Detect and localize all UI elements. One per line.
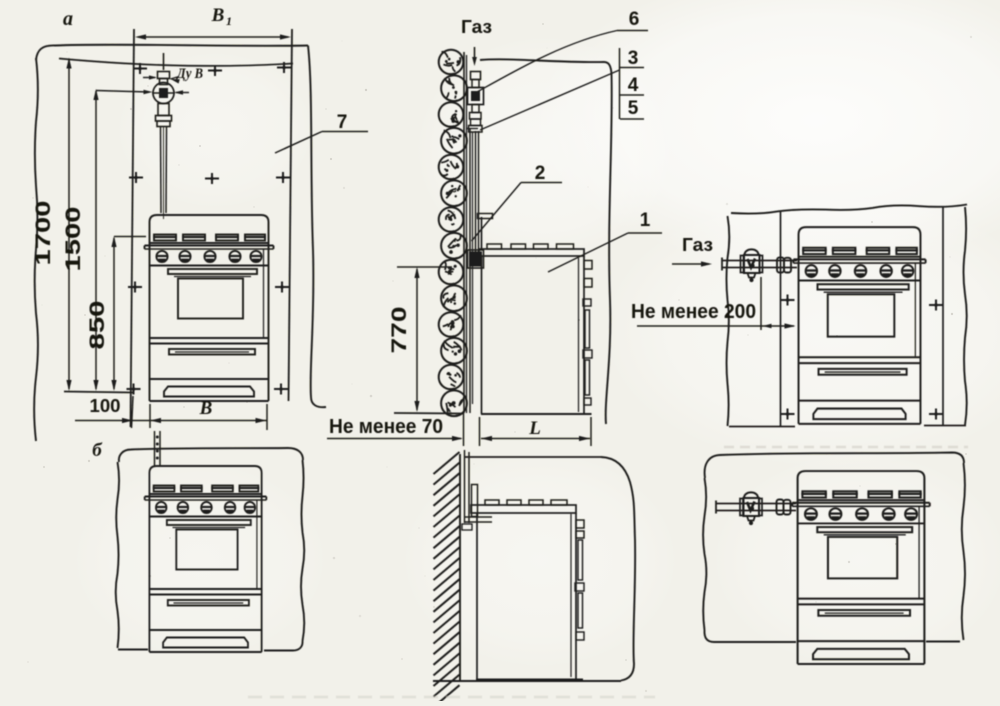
svg-text:1700: 1700 <box>32 201 55 266</box>
svg-text:7: 7 <box>337 112 348 133</box>
svg-text:5: 5 <box>628 98 639 119</box>
svg-text:3: 3 <box>628 48 639 69</box>
svg-text:2: 2 <box>535 163 546 184</box>
svg-text:Не менее 200: Не менее 200 <box>631 301 756 323</box>
svg-text:Газ: Газ <box>682 235 713 255</box>
svg-text:1500: 1500 <box>62 207 85 272</box>
svg-text:В: В <box>211 5 225 26</box>
svg-text:Не менее 70: Не менее 70 <box>329 416 443 438</box>
svg-text:а: а <box>63 8 73 30</box>
svg-text:б: б <box>92 440 103 461</box>
svg-text:4: 4 <box>628 75 639 96</box>
svg-text:100: 100 <box>90 396 121 416</box>
svg-text:850: 850 <box>86 301 109 350</box>
svg-text:1: 1 <box>226 14 232 28</box>
svg-text:В: В <box>199 398 213 419</box>
svg-text:1: 1 <box>640 210 651 231</box>
svg-text:L: L <box>528 418 541 439</box>
svg-text:6: 6 <box>629 9 640 30</box>
svg-text:770: 770 <box>388 307 411 354</box>
svg-text:Газ: Газ <box>461 17 492 37</box>
